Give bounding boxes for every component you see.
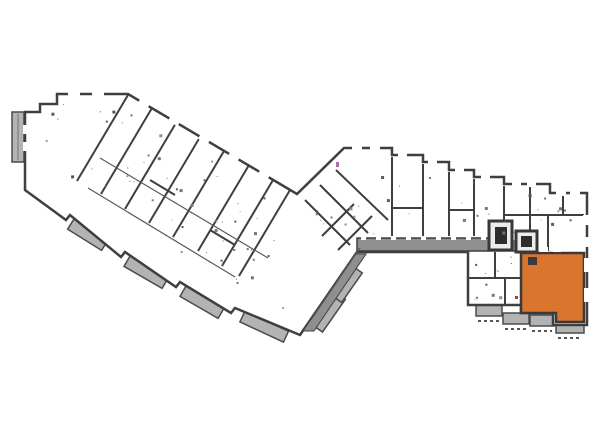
detail-speckle <box>57 119 58 120</box>
detail-speckle <box>204 179 206 181</box>
highlighted-unit-group[interactable] <box>521 253 584 322</box>
detail-speckle <box>222 264 223 265</box>
detail-speckle <box>316 213 318 215</box>
detail-speckle <box>557 210 559 212</box>
detail-speckle <box>476 297 478 299</box>
detail-speckle <box>492 294 495 297</box>
detail-speckle <box>345 224 347 226</box>
detail-speckle <box>240 211 241 212</box>
detail-speckle <box>399 186 400 187</box>
detail-speckle <box>317 210 318 211</box>
detail-speckle <box>323 223 324 224</box>
detail-magenta-symbol <box>336 162 339 167</box>
detail-speckle <box>254 232 257 235</box>
detail-speckle <box>502 232 505 235</box>
detail-speckle <box>488 214 489 215</box>
detail-speckle <box>381 176 384 179</box>
detail-speckle <box>477 215 479 217</box>
detail-speckle <box>331 217 333 219</box>
detail-speckle <box>181 251 183 253</box>
detail-speckle <box>159 134 162 137</box>
building-outline <box>25 94 587 335</box>
detail-speckle <box>505 281 506 282</box>
detail-speckle <box>106 121 108 123</box>
detail-speckle <box>257 218 258 219</box>
detail-speckle <box>211 161 213 163</box>
detail-speckle <box>429 177 431 179</box>
detail-speckle <box>129 181 130 182</box>
detail-speckle <box>112 111 115 114</box>
detail-speckle <box>167 178 168 179</box>
detail-speckle <box>176 188 178 190</box>
detail-speckle <box>191 204 194 207</box>
detail-speckle <box>182 226 184 228</box>
detail-speckle <box>71 175 74 178</box>
detail-speckle <box>538 209 539 210</box>
detail-speckle <box>485 207 488 210</box>
unit-wall-stub <box>528 257 537 265</box>
detail-speckle <box>513 232 514 233</box>
elevator-shaft <box>521 236 532 247</box>
detail-speckle <box>158 157 161 160</box>
detail-speckle <box>529 194 532 197</box>
detail-speckle <box>499 296 502 299</box>
detail-speckle <box>237 203 238 204</box>
detail-speckle <box>505 221 506 222</box>
detail-speckle <box>152 199 154 201</box>
detail-speckle <box>358 206 359 207</box>
detail-speckle <box>127 168 128 169</box>
detail-speckle <box>540 220 541 221</box>
floor-plan <box>0 0 600 436</box>
detail-speckle <box>497 270 498 271</box>
detail-speckle <box>206 252 207 253</box>
detail-speckle <box>233 249 235 251</box>
detail-speckle <box>511 257 512 258</box>
detail-speckle <box>236 279 237 280</box>
detail-speckle <box>171 220 172 221</box>
detail-speckle <box>485 284 487 286</box>
detail-speckle <box>180 189 183 192</box>
detail-speckle <box>222 222 223 223</box>
detail-speckle <box>559 207 562 210</box>
detail-speckle <box>282 307 284 309</box>
detail-speckle <box>529 221 530 222</box>
detail-speckle <box>221 260 223 262</box>
detail-speckle <box>461 203 462 204</box>
detail-speckle <box>223 241 224 242</box>
detail-speckle <box>91 169 92 170</box>
detail-speckle <box>144 162 145 163</box>
detail-speckle <box>463 219 466 222</box>
detail-speckle <box>564 210 566 212</box>
detail-speckle <box>51 113 54 116</box>
detail-speckle <box>131 114 133 116</box>
detail-speckle <box>320 220 321 221</box>
detail-speckle <box>498 271 499 272</box>
detail-speckle <box>570 219 572 221</box>
detail-speckle <box>148 155 150 157</box>
detail-speckle <box>215 229 218 232</box>
detail-speckle <box>126 175 128 177</box>
detail-speckle <box>473 182 475 184</box>
detail-speckle <box>354 216 356 218</box>
balcony-step-3 <box>530 315 554 326</box>
detail-speckle <box>349 207 352 210</box>
detail-speckle <box>134 181 135 182</box>
balcony-step-2 <box>503 313 529 324</box>
detail-speckle <box>63 104 64 105</box>
detail-speckle <box>46 140 48 142</box>
detail-speckle <box>475 264 477 266</box>
detail-speckle <box>234 221 236 223</box>
detail-speckle <box>264 197 266 199</box>
balcony-step-1 <box>476 305 502 316</box>
detail-speckle <box>544 198 546 200</box>
detail-red-symbol <box>515 296 518 299</box>
detail-speckle <box>274 240 275 241</box>
detail-speckle <box>105 185 106 186</box>
detail-speckle <box>511 263 512 264</box>
detail-speckle <box>100 111 101 112</box>
detail-speckle <box>217 176 218 177</box>
detail-speckle <box>251 249 252 250</box>
detail-speckle <box>409 213 410 214</box>
detail-speckle <box>237 282 239 284</box>
elevator-shaft <box>495 227 507 244</box>
detail-speckle <box>387 199 390 202</box>
detail-speckle <box>474 299 475 300</box>
detail-speckle <box>485 273 486 274</box>
detail-speckle <box>551 223 554 226</box>
detail-speckle <box>247 248 249 250</box>
detail-speckle <box>216 220 218 222</box>
detail-speckle <box>191 213 192 214</box>
detail-speckle <box>268 255 270 257</box>
detail-speckle <box>253 259 255 261</box>
floor-plan-canvas <box>0 0 600 436</box>
detail-speckle <box>373 233 374 234</box>
detail-speckle <box>122 122 123 123</box>
detail-speckle <box>251 276 254 279</box>
